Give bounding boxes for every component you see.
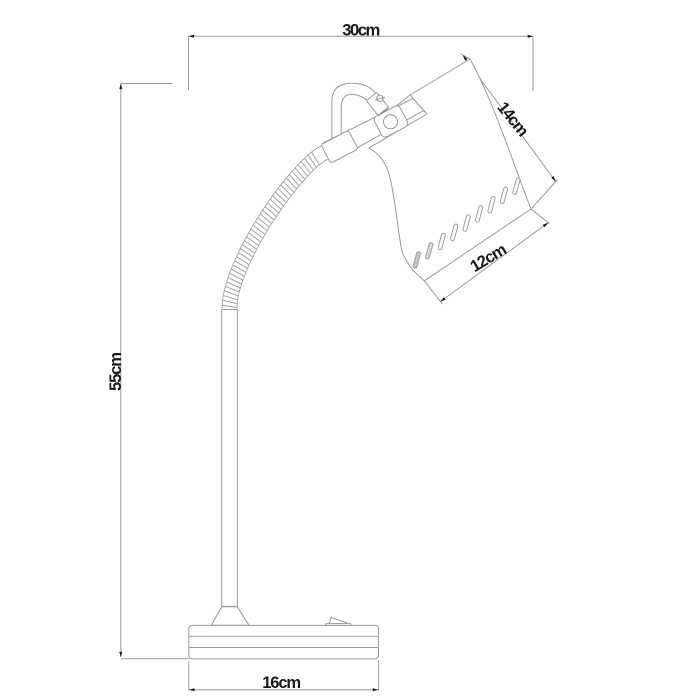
svg-text:30cm: 30cm [342,20,380,39]
svg-text:16cm: 16cm [262,673,301,692]
svg-text:55cm: 55cm [106,352,125,391]
